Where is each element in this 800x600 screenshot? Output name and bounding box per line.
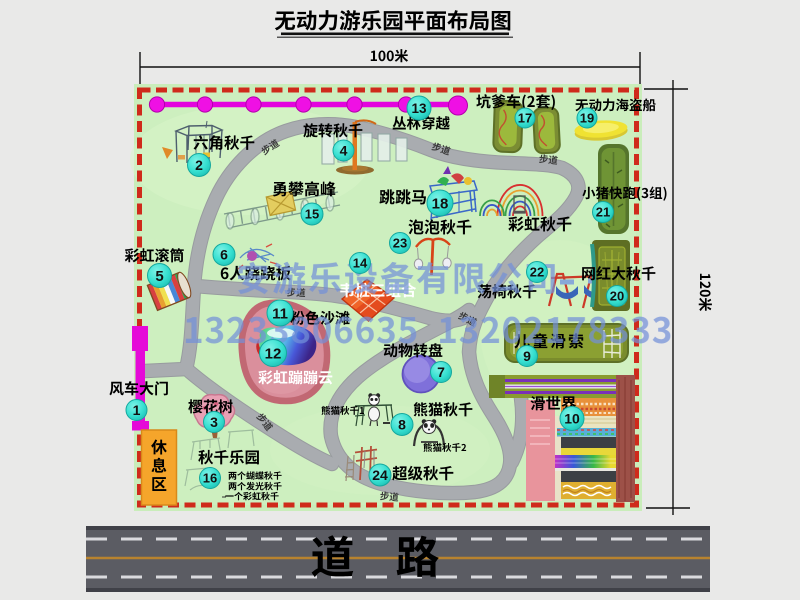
svg-text:20: 20	[610, 289, 624, 304]
svg-text:3: 3	[210, 414, 218, 430]
svg-text:24: 24	[372, 467, 388, 483]
svg-text:22: 22	[530, 265, 544, 280]
svg-text:21: 21	[596, 205, 610, 220]
svg-text:6: 6	[220, 247, 228, 263]
svg-text:7: 7	[437, 364, 445, 380]
svg-text:18: 18	[432, 195, 449, 212]
svg-text:8: 8	[398, 417, 406, 433]
svg-text:13: 13	[411, 101, 427, 116]
svg-text:5: 5	[155, 268, 163, 285]
svg-text:15: 15	[305, 207, 319, 222]
svg-text:9: 9	[523, 348, 531, 364]
svg-text:12: 12	[265, 345, 282, 362]
svg-text:14: 14	[353, 256, 368, 271]
svg-text:11: 11	[272, 305, 288, 322]
svg-text:17: 17	[518, 111, 532, 126]
svg-text:2: 2	[195, 157, 203, 173]
svg-text:19: 19	[580, 111, 594, 126]
svg-text:10: 10	[564, 411, 580, 427]
svg-text:16: 16	[203, 471, 217, 486]
svg-text:4: 4	[340, 143, 348, 159]
svg-text:1: 1	[133, 402, 141, 418]
svg-text:23: 23	[393, 236, 407, 251]
